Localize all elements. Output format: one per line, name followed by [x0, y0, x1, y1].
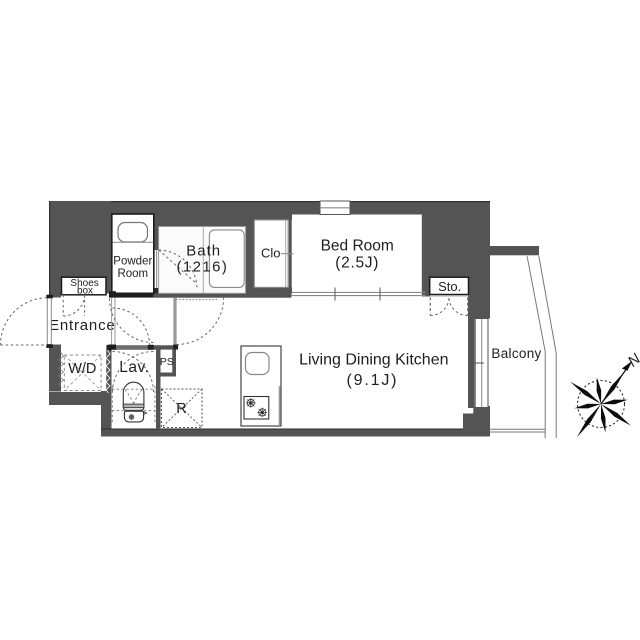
svg-text:Room: Room	[117, 268, 148, 280]
svg-text:(2.5J): (2.5J)	[335, 255, 379, 272]
svg-text:Bath: Bath	[186, 242, 221, 259]
svg-text:Sto.: Sto.	[438, 279, 461, 294]
svg-text:PS: PS	[160, 356, 174, 368]
svg-text:Bed Room: Bed Room	[321, 238, 394, 255]
svg-text:(9.1J): (9.1J)	[347, 372, 399, 389]
svg-text:Powder: Powder	[113, 256, 152, 268]
svg-text:Living Dining Kitchen: Living Dining Kitchen	[299, 352, 448, 369]
svg-text:W/D: W/D	[68, 361, 96, 377]
svg-text:(1216): (1216)	[177, 259, 229, 276]
svg-text:Balcony: Balcony	[491, 346, 541, 361]
svg-text:Clo: Clo	[261, 246, 281, 261]
svg-text:Entrance: Entrance	[49, 317, 115, 334]
svg-text:R: R	[176, 401, 186, 417]
